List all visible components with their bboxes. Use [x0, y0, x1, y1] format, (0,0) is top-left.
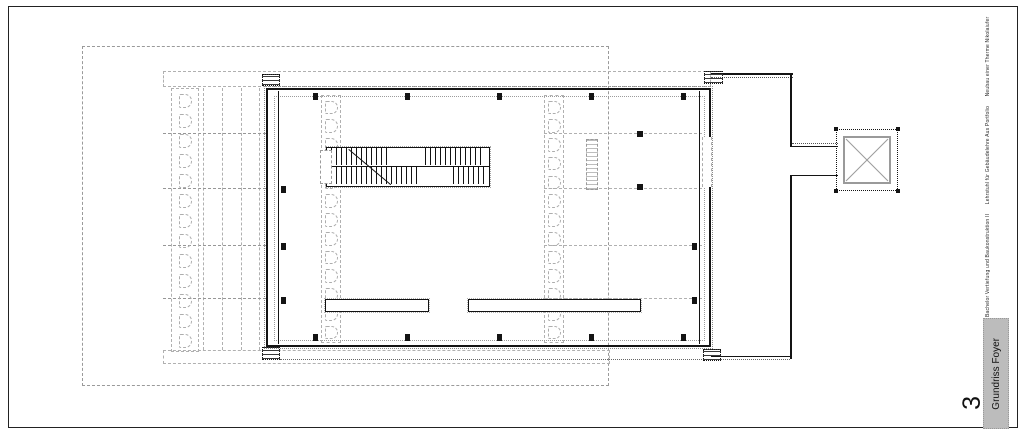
column [405, 334, 410, 341]
column [313, 93, 318, 100]
stair-treads [331, 167, 421, 184]
walkway-wall-top [711, 73, 793, 75]
ghost-band-top [163, 71, 711, 87]
ghost-room-strip-left [171, 88, 199, 352]
column [692, 243, 697, 250]
shaft-corner-tick [896, 127, 900, 131]
stair-treads [453, 167, 485, 184]
column [281, 186, 286, 193]
shaft-corner-tick [834, 189, 838, 193]
shaft-corner-tick [834, 127, 838, 131]
column [681, 93, 686, 100]
ghost-door-module [179, 194, 192, 209]
ghost-door-module [179, 94, 192, 109]
entry-steps [262, 74, 280, 86]
elevator-x-icon [845, 138, 889, 182]
entry-steps [262, 347, 280, 360]
column [281, 243, 286, 250]
stair [326, 147, 490, 187]
column [589, 334, 594, 341]
bench-counter [325, 299, 429, 312]
column [497, 334, 502, 341]
column [405, 93, 410, 100]
corridor-top-wall [792, 146, 838, 147]
ghost-gridline-vertical [222, 88, 223, 350]
bench-counter [468, 299, 641, 312]
column [497, 93, 502, 100]
column [313, 334, 318, 341]
ghost-door-module [179, 154, 192, 169]
right-wall-door-opening [702, 137, 712, 187]
column [281, 297, 286, 304]
ghost-door-module [179, 134, 192, 149]
column [589, 93, 594, 100]
entry-steps [704, 71, 723, 84]
left-wall-face [278, 91, 279, 344]
shaft-hatch [586, 139, 598, 190]
corridor-top-dotted [792, 143, 838, 144]
column [637, 131, 643, 137]
ghost-door-module [179, 174, 192, 189]
stair-mid-rail [327, 166, 489, 167]
ghost-door-module [179, 294, 192, 309]
walkway-wall-right-lower [790, 175, 792, 359]
floor-plan-sheet: Bachelor Vertiefung und Baukonstruktion … [0, 0, 1024, 435]
ghost-door-module [179, 114, 192, 129]
stair-treads [425, 148, 485, 165]
ghost-door-module [179, 214, 192, 229]
ghost-door-module [179, 334, 192, 349]
ghost-band-bottom [163, 350, 610, 364]
ghost-gridline-vertical [203, 88, 204, 350]
column [681, 334, 686, 341]
right-wall-face [699, 91, 700, 344]
column [637, 184, 643, 190]
walkway-wall-top-dotted [711, 77, 793, 78]
column [692, 297, 697, 304]
walkway-wall-right-upper [790, 73, 792, 147]
corridor-bottom-wall [792, 175, 838, 176]
stair-treads [331, 148, 389, 165]
ghost-door-module [179, 234, 192, 249]
ghost-door-module [179, 274, 192, 289]
entry-steps [703, 349, 721, 361]
drawing-title: Grundriss Foyer [991, 338, 1002, 410]
drawing-title-box: Grundriss Foyer [983, 318, 1009, 429]
walkway-wall-bottom [711, 356, 791, 357]
ghost-door-module [179, 254, 192, 269]
ghost-gridline-vertical [241, 88, 242, 350]
ghost-gridline-vertical [259, 88, 260, 350]
ghost-door-module [179, 314, 192, 329]
project-caption: Bachelor Vertiefung und Baukonstruktion … [985, 75, 991, 317]
stair-landing-cap [320, 150, 332, 184]
shaft-corner-tick [896, 189, 900, 193]
sheet-number: 3 [959, 384, 985, 422]
